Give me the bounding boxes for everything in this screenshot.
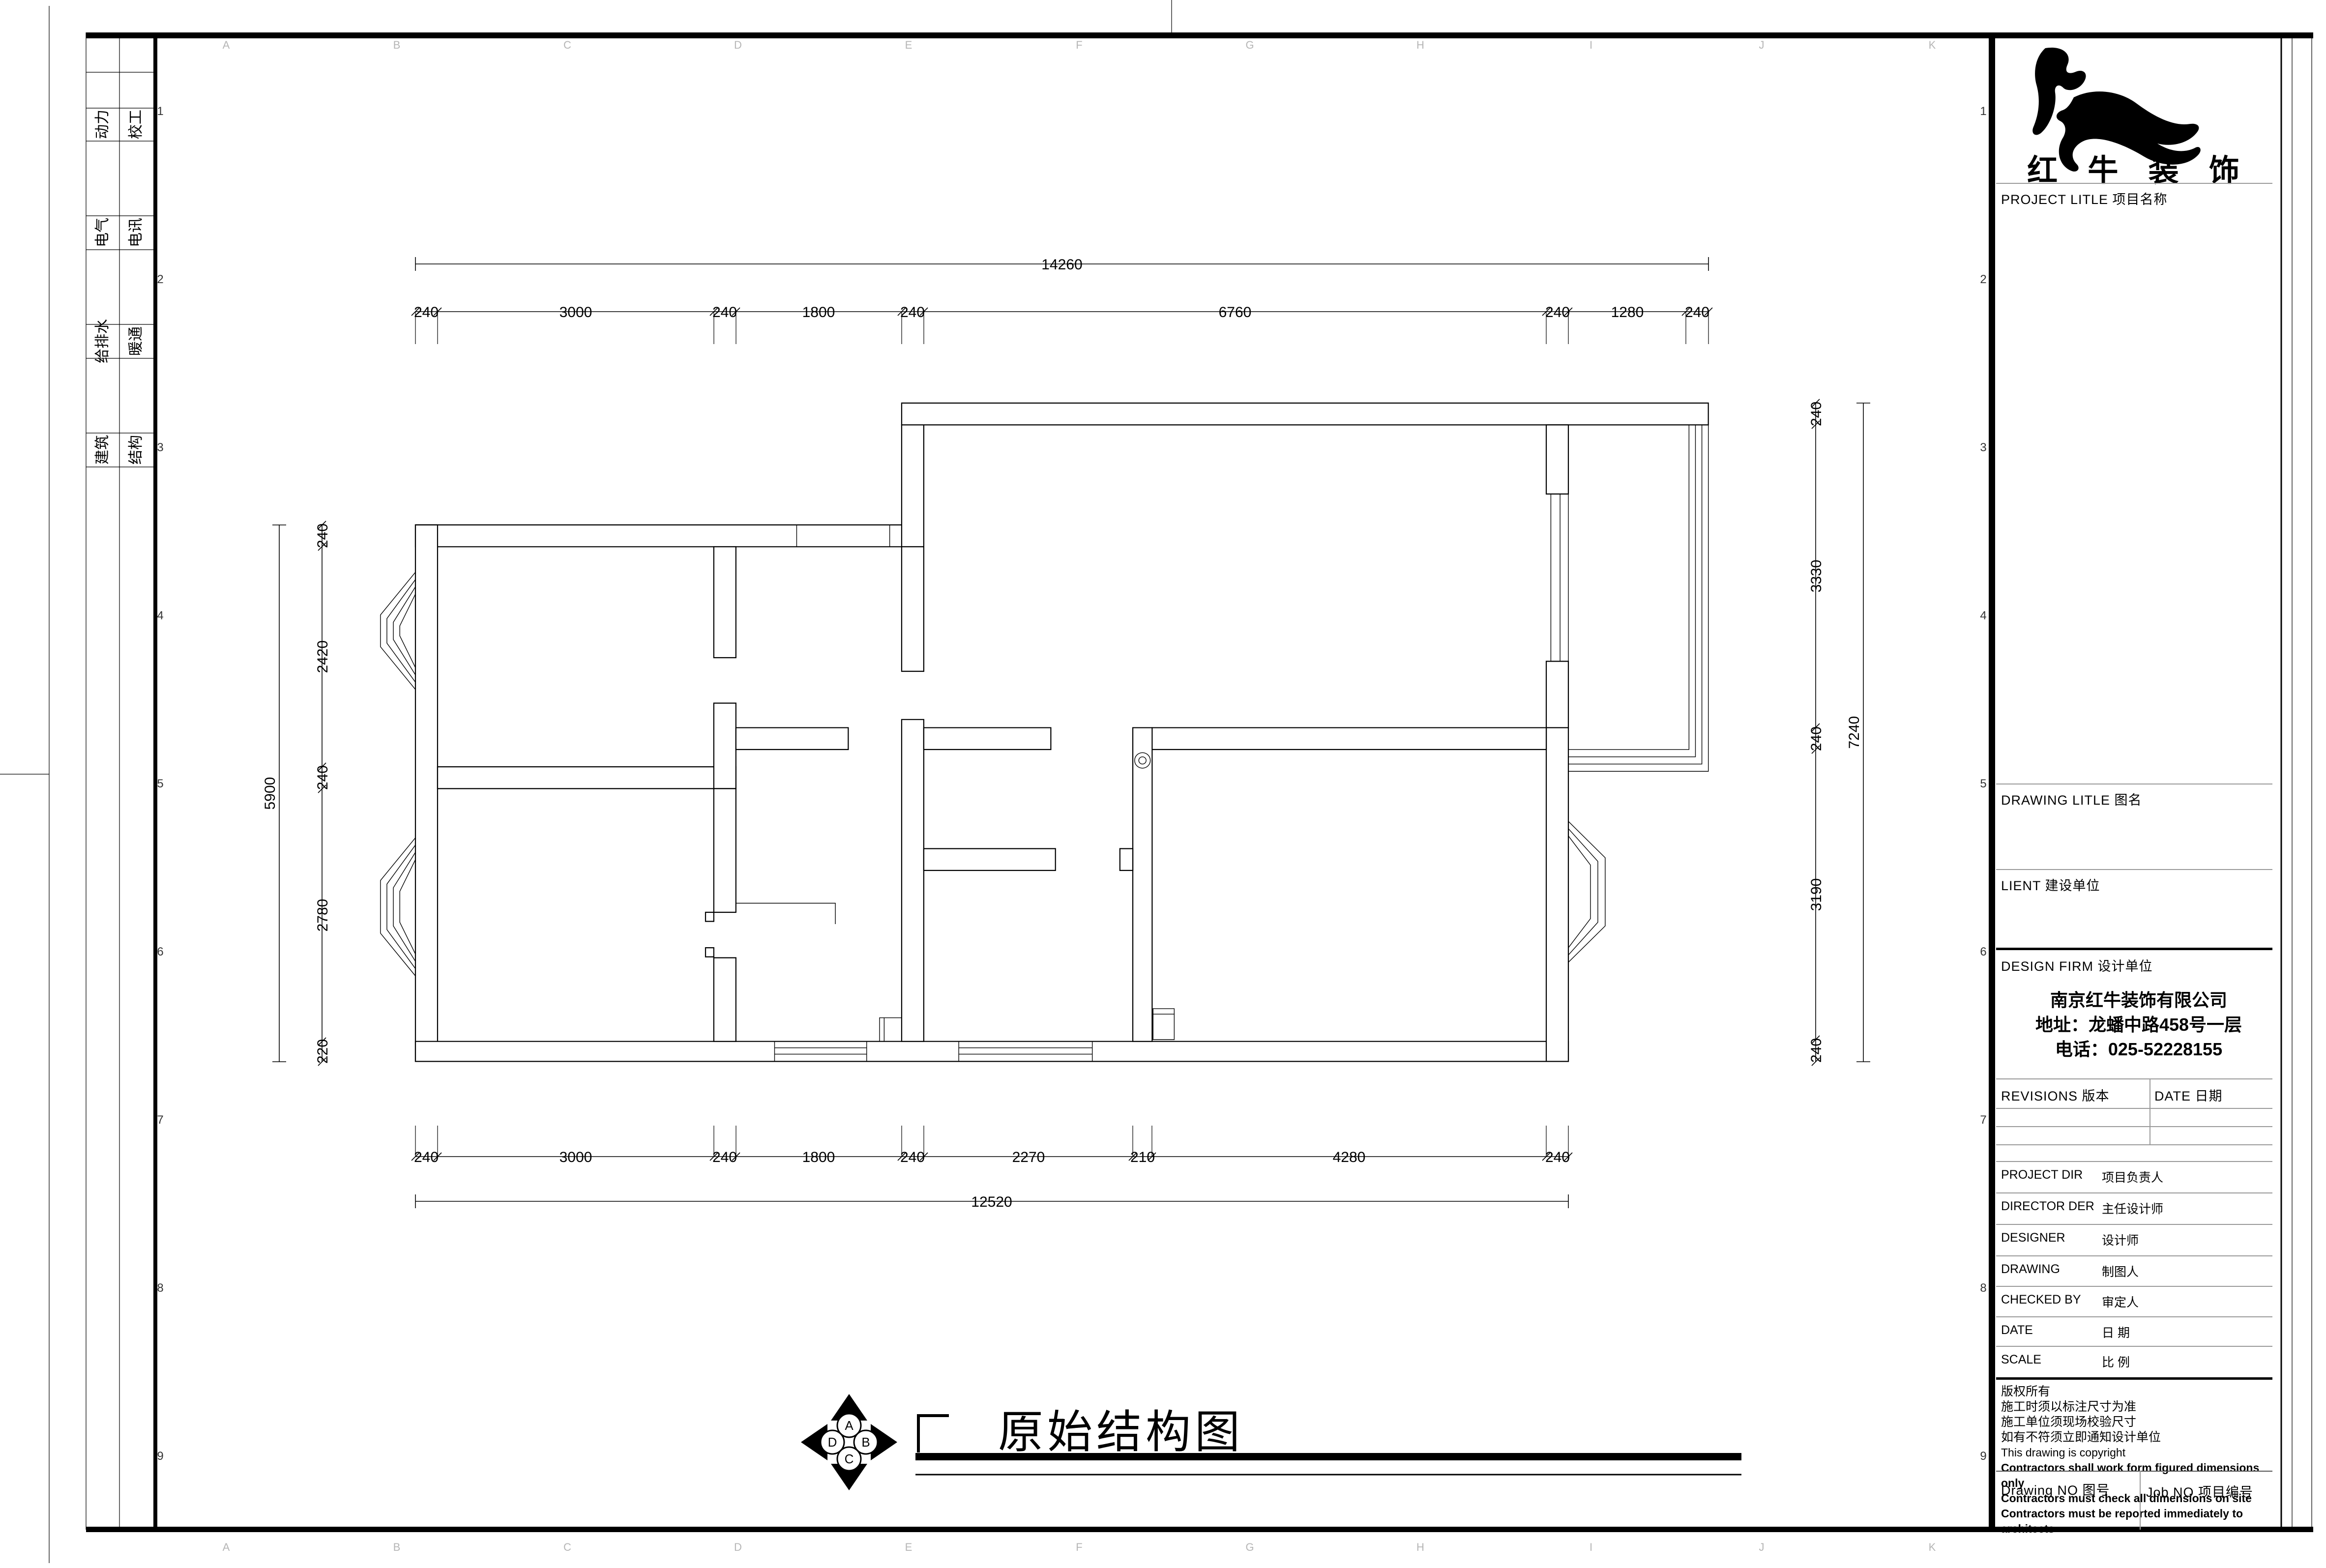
grid-letter: C	[563, 39, 571, 51]
grid-number: 1	[157, 105, 163, 118]
wall-kitchen-top-a	[924, 849, 1056, 871]
project-title-label: PROJECT LITLE 项目名称	[2001, 189, 2168, 208]
grid-number: 1	[1980, 105, 1986, 118]
grid-letter: F	[1076, 39, 1082, 51]
grid-number: 4	[157, 609, 163, 622]
compass-d: D	[828, 1435, 837, 1450]
bay-window-lower-left	[381, 838, 415, 976]
wall-bed2-corridor-b	[714, 958, 736, 1042]
row-designer-en: DESIGNER	[2001, 1231, 2065, 1245]
dim-left-seg: 240	[315, 523, 331, 548]
wall-bath-top	[736, 727, 849, 749]
drawing-title-group: 原始结构图	[915, 1407, 1741, 1475]
row-drawing-zh: 制图人	[2102, 1262, 2139, 1280]
client-label: LIENT 建设单位	[2001, 875, 2100, 894]
dim-bottom-seg: 240	[712, 1149, 737, 1165]
door-jamb	[706, 912, 714, 922]
tab-plumbing: 给排水	[94, 319, 111, 363]
tab-power: 动力	[94, 110, 111, 139]
row-date-en: DATE	[2001, 1323, 2033, 1337]
grid-letter: A	[223, 39, 230, 51]
door-leaf-bath	[880, 1018, 902, 1042]
grid-letter: H	[1416, 1541, 1424, 1553]
dim-bottom-seg: 240	[1545, 1149, 1570, 1165]
grid-number: 5	[1980, 777, 1986, 790]
titleblock-separator	[1989, 32, 1995, 1532]
grid-number: 3	[1980, 441, 1986, 454]
wall-balcony-stub-bottom	[1546, 661, 1568, 727]
floor-plan	[381, 403, 1708, 1061]
balcony-window	[1551, 425, 1708, 771]
grid-letter: I	[1590, 1541, 1592, 1553]
wall-living-bottom-a	[924, 727, 1051, 749]
grid-letter: A	[223, 1541, 230, 1553]
row-drawing-en: DRAWING	[2001, 1262, 2060, 1277]
grid-letter: B	[393, 39, 401, 51]
dim-top-seg: 240	[414, 304, 439, 320]
wall-bedroom-divider	[438, 767, 736, 788]
bay-window-right	[1568, 821, 1605, 962]
date-col-label: DATE 日期	[2154, 1085, 2223, 1104]
grid-letter: E	[905, 39, 913, 51]
dim-bottom-seg: 4280	[1333, 1149, 1366, 1165]
dim-bottom-seg: 240	[414, 1149, 439, 1165]
bottom-border	[86, 1527, 2313, 1532]
row-scale-en: SCALE	[2001, 1353, 2041, 1367]
dim-right-seg: 240	[1808, 402, 1825, 426]
copyright-block: 版权所有 施工时须以标注尺寸为准 施工单位须现场校验尺寸 如有不符须立即通知设计…	[2001, 1384, 2272, 1537]
row-checked-zh: 审定人	[2102, 1293, 2139, 1310]
bath-partition	[736, 903, 835, 925]
row-director-en: DIRECTOR DER	[2001, 1199, 2094, 1214]
wall-corridor-right-b	[902, 720, 924, 1042]
dim-left-overall: 5900	[262, 777, 278, 810]
bay-window-upper-left	[381, 572, 415, 690]
dim-right-seg: 240	[1808, 726, 1825, 751]
dim-left-seg: 220	[315, 1039, 331, 1064]
wall-bed1-corridor-b	[714, 703, 736, 789]
wall-balcony-stub-top	[1546, 425, 1568, 494]
design-firm-label: DESIGN FIRM 设计单位	[2001, 956, 2153, 975]
compass-c: C	[845, 1452, 854, 1466]
grid-number: 7	[1980, 1113, 1986, 1127]
dim-bottom-seg: 3000	[559, 1149, 592, 1165]
grid-number: 9	[157, 1450, 163, 1463]
wall-top	[902, 403, 1708, 425]
grid-letter: D	[734, 39, 742, 51]
job-no-label: Job NO 项目编号	[2146, 1481, 2253, 1501]
tab-asbuilt: 校工	[128, 110, 144, 139]
dimensions: 14260 240 3000 240 1800 240 6760 240 128…	[262, 257, 1870, 1210]
copyright-line: 如有不符须立即通知设计单位	[2001, 1430, 2272, 1445]
grid-number: 7	[157, 1113, 163, 1127]
compass-a: A	[845, 1418, 854, 1433]
wall-bed1-corridor-a	[714, 547, 736, 658]
sheet-canvas: A B C D E F G H I J K A B C D E F G H I …	[0, 0, 2326, 1568]
grid-letter: E	[905, 1541, 913, 1553]
wall-corridor-right-a	[902, 547, 924, 671]
dim-top-seg: 240	[1685, 304, 1709, 320]
grid-letter: H	[1416, 39, 1424, 51]
wall-left-top	[415, 525, 924, 547]
grid-number: 6	[1980, 945, 1986, 958]
grid-letter: B	[393, 1541, 401, 1553]
company-name: 南京红牛装饰有限公司	[1996, 986, 2281, 1012]
row-project-dir-en: PROJECT DIR	[2001, 1168, 2083, 1182]
copyright-line: Contractors must be reported immediately…	[2001, 1506, 2272, 1537]
drawing-no-label: Drawing NO 图号	[2001, 1480, 2110, 1499]
compass-symbol: A B C D	[801, 1394, 897, 1490]
sheet-frame	[0, 0, 2313, 1563]
dim-top-overall: 14260	[1041, 257, 1082, 273]
company-phone: 电话：025-52228155	[1996, 1035, 2281, 1061]
dim-left-seg: 2780	[315, 899, 331, 932]
row-director-zh: 主任设计师	[2102, 1199, 2163, 1217]
copyright-line: 施工时须以标注尺寸为准	[2001, 1399, 2272, 1415]
company-address: 地址：龙蟠中路458号一层	[1996, 1011, 2281, 1036]
grid-letter: I	[1590, 39, 1592, 51]
dim-bottom-seg: 210	[1130, 1149, 1155, 1165]
row-checked-en: CHECKED BY	[2001, 1293, 2081, 1307]
dim-right-seg: 3330	[1808, 560, 1825, 593]
dim-top-seg: 240	[900, 304, 925, 320]
drawing-title-label: DRAWING LITLE 图名	[2001, 789, 2142, 809]
compass-b: B	[861, 1435, 870, 1450]
dim-right-overall: 7240	[1846, 716, 1862, 749]
grid-number: 2	[1980, 273, 1986, 286]
grid-number: 8	[157, 1281, 163, 1295]
wall-left	[415, 525, 438, 1061]
copyright-line: 施工单位须现场校验尺寸	[2001, 1415, 2272, 1430]
dim-bottom-overall: 12520	[971, 1194, 1012, 1210]
drawing-title-text: 原始结构图	[998, 1407, 1244, 1457]
grid-letter: J	[1759, 1541, 1765, 1553]
row-date-zh: 日 期	[2102, 1323, 2130, 1341]
drawing-sheet: A B C D E F G H I J K A B C D E F G H I …	[0, 0, 2326, 1568]
discipline-tabs: 动力 校工 电气 电讯 给排水 暖通 建筑 结构	[86, 32, 153, 1530]
grid-number: 9	[1980, 1450, 1986, 1463]
wall-bed2-corridor-a	[714, 788, 736, 912]
grid-number: 8	[1980, 1281, 1986, 1295]
row-scale-zh: 比 例	[2102, 1353, 2130, 1370]
wall-right	[1546, 727, 1568, 1061]
top-border	[86, 32, 2313, 38]
grid-number: 2	[157, 273, 163, 286]
tab-hvac: 暖通	[128, 326, 144, 356]
grid-letter: K	[1929, 1541, 1936, 1553]
dim-top-seg: 240	[1545, 304, 1570, 320]
title-block: 红 牛 装 饰 PROJECT LITLE 项目名称 DRAWING LITLE…	[1996, 32, 2281, 1530]
grid-letter: G	[1245, 1541, 1254, 1553]
door-jamb	[706, 948, 714, 957]
title-underline-thick	[915, 1453, 1741, 1460]
revisions-label: REVISIONS 版本	[2001, 1085, 2110, 1104]
dim-top-seg: 1280	[1611, 304, 1644, 320]
grid-letter: C	[563, 1541, 571, 1553]
copyright-line: This drawing is copyright	[2001, 1445, 2272, 1460]
grid-letter: G	[1245, 39, 1254, 51]
tab-telecom: 电讯	[128, 218, 144, 247]
row-project-dir-zh: 项目负责人	[2102, 1168, 2163, 1186]
grid-number: 4	[1980, 609, 1986, 622]
dim-top-seg: 6760	[1219, 304, 1252, 320]
grid-letter: K	[1929, 39, 1936, 51]
row-designer-zh: 设计师	[2102, 1231, 2139, 1249]
grid-number: 3	[157, 441, 163, 454]
wall-bottom	[415, 1042, 1568, 1062]
dim-top-seg: 240	[712, 304, 737, 320]
wall-kitchen-bedroom	[1133, 727, 1152, 1041]
tab-architecture: 建筑	[94, 435, 111, 465]
copyright-line: 版权所有	[2001, 1384, 2272, 1399]
dim-bottom-seg: 1800	[802, 1149, 835, 1165]
dim-top-seg: 3000	[559, 304, 592, 320]
dim-right-seg: 3190	[1808, 878, 1825, 911]
dim-right-seg: 240	[1808, 1038, 1825, 1063]
tab-electrical: 电气	[94, 218, 111, 247]
grid-number: 6	[157, 945, 163, 958]
dim-bottom-seg: 2270	[1012, 1149, 1045, 1165]
grid-letter: D	[734, 1541, 742, 1553]
title-bracket	[918, 1416, 949, 1452]
wall-step	[902, 425, 924, 547]
door-leaf-bedroom3	[1153, 1009, 1174, 1040]
grid-number: 5	[157, 777, 163, 790]
grid-letter: J	[1759, 39, 1765, 51]
wall-living-bottom-b	[1152, 727, 1546, 749]
grid-letter: F	[1076, 1541, 1082, 1553]
dim-left-seg: 2420	[315, 640, 331, 673]
wall-kitchen-top-b	[1120, 849, 1133, 871]
dim-top-seg: 1800	[802, 304, 835, 320]
dim-left-seg: 240	[315, 765, 331, 790]
dim-bottom-seg: 240	[900, 1149, 925, 1165]
tab-structure: 结构	[128, 435, 144, 465]
